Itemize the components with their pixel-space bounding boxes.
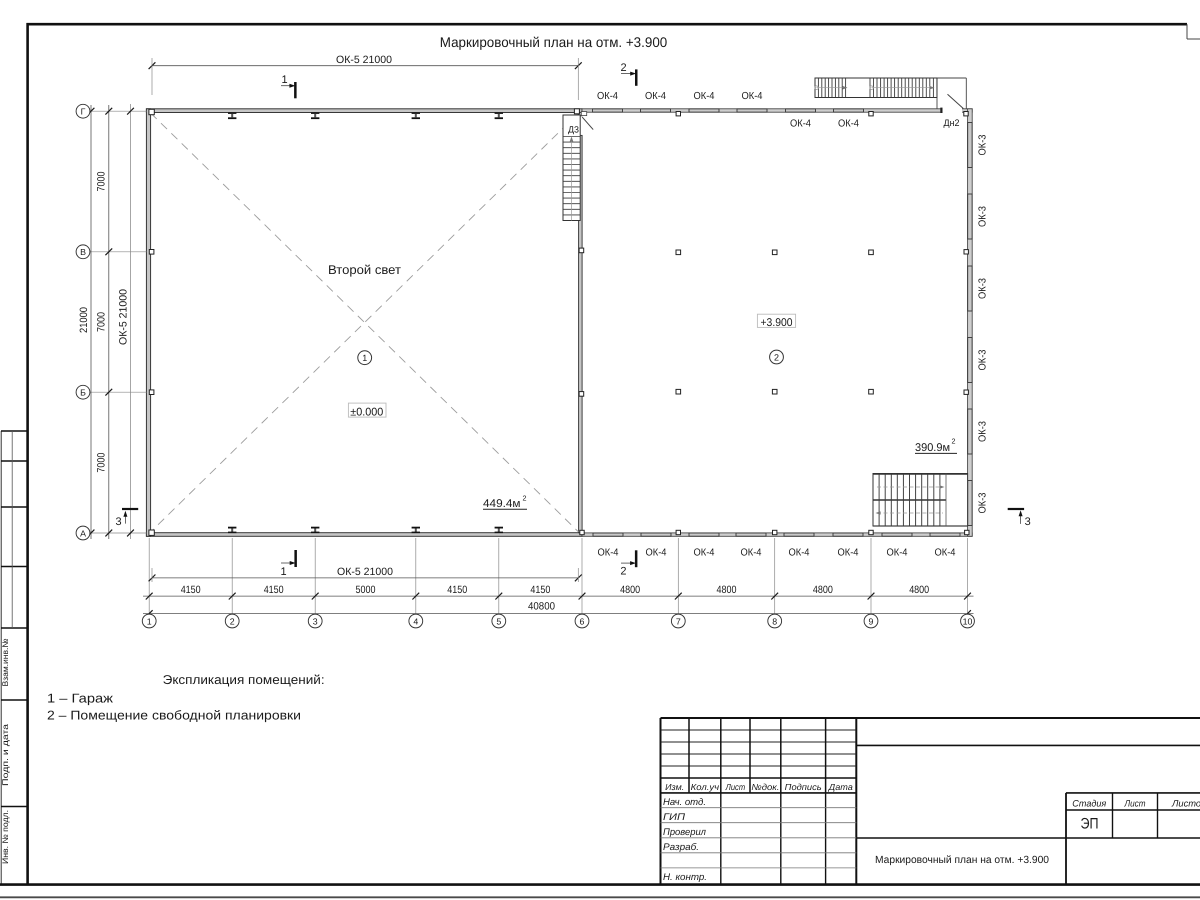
svg-text:2: 2 (523, 494, 527, 503)
svg-text:Взам.инв.№: Взам.инв.№ (1, 638, 10, 686)
svg-text:21000: 21000 (78, 307, 90, 333)
svg-text:ОК-5 21000: ОК-5 21000 (337, 566, 393, 578)
svg-text:4150: 4150 (447, 584, 467, 596)
svg-text:Разраб.: Разраб. (663, 842, 699, 853)
svg-text:Лист: Лист (725, 782, 745, 792)
svg-text:Дата: Дата (828, 782, 853, 792)
svg-text:ОК-3: ОК-3 (978, 492, 989, 513)
svg-text:Дн2: Дн2 (944, 118, 960, 129)
svg-text:Лист: Лист (1124, 798, 1146, 808)
svg-text:А: А (80, 528, 86, 538)
svg-text:2: 2 (952, 437, 956, 446)
svg-text:Г: Г (81, 107, 86, 117)
svg-text:ОК-3: ОК-3 (978, 278, 989, 299)
svg-text:7000: 7000 (96, 171, 108, 191)
svg-text:Нач. отд.: Нач. отд. (663, 797, 706, 808)
svg-text:1: 1 (147, 616, 152, 626)
svg-text:Н. контр.: Н. контр. (663, 872, 707, 883)
svg-text:3: 3 (313, 616, 318, 626)
svg-text:10: 10 (963, 616, 973, 626)
svg-text:№док.: №док. (751, 782, 779, 792)
svg-text:4800: 4800 (620, 584, 640, 596)
svg-text:Экспликация помещений:: Экспликация помещений: (163, 672, 325, 687)
svg-text:40800: 40800 (528, 600, 555, 612)
svg-text:4150: 4150 (181, 584, 201, 596)
svg-text:390.9м: 390.9м (915, 442, 950, 454)
svg-text:ОК-4: ОК-4 (598, 548, 619, 559)
svg-text:1 – Гараж: 1 – Гараж (47, 691, 114, 706)
svg-text:7: 7 (676, 616, 681, 626)
svg-text:ОК-4: ОК-4 (645, 91, 666, 102)
svg-text:2: 2 (620, 566, 626, 578)
svg-text:3: 3 (115, 516, 121, 528)
svg-text:4150: 4150 (264, 584, 284, 596)
svg-text:ОК-3: ОК-3 (978, 349, 989, 370)
svg-text:ОК-4: ОК-4 (742, 91, 763, 102)
svg-text:4800: 4800 (909, 584, 929, 596)
svg-text:2: 2 (230, 616, 235, 626)
svg-text:Проверил: Проверил (663, 827, 707, 838)
svg-text:ОК-4: ОК-4 (741, 548, 762, 559)
svg-text:ОК-4: ОК-4 (838, 548, 859, 559)
svg-text:1: 1 (362, 353, 367, 363)
svg-text:2: 2 (620, 62, 626, 74)
svg-text:ОК-4: ОК-4 (887, 548, 908, 559)
svg-text:Изм.: Изм. (665, 782, 684, 792)
svg-text:6: 6 (580, 616, 585, 626)
svg-text:ОК-4: ОК-4 (646, 548, 667, 559)
svg-text:7000: 7000 (96, 312, 108, 332)
svg-text:Подпись: Подпись (785, 782, 822, 792)
svg-text:ОК-4: ОК-4 (694, 548, 715, 559)
svg-text:+3.900: +3.900 (761, 317, 793, 329)
svg-text:9: 9 (869, 616, 874, 626)
svg-text:В: В (80, 247, 86, 257)
svg-text:Инв. № подл.: Инв. № подл. (1, 810, 10, 864)
svg-text:ОК-5 21000: ОК-5 21000 (336, 54, 392, 66)
svg-text:±0.000: ±0.000 (350, 407, 383, 419)
svg-text:Д3: Д3 (568, 124, 579, 134)
svg-text:2 – Помещение свободной планир: 2 – Помещение свободной планировки (47, 708, 301, 723)
svg-text:4: 4 (413, 616, 418, 626)
svg-text:ОК-3: ОК-3 (978, 206, 989, 227)
svg-text:Маркировочный план на отм. +3.: Маркировочный план на отм. +3.900 (440, 34, 668, 50)
svg-text:ОК-4: ОК-4 (694, 91, 715, 102)
svg-text:4800: 4800 (813, 584, 833, 596)
svg-text:8: 8 (772, 616, 777, 626)
svg-text:449.4м: 449.4м (483, 498, 521, 510)
svg-text:2: 2 (774, 353, 779, 363)
svg-text:5000: 5000 (356, 584, 376, 596)
svg-text:Кол.уч: Кол.уч (691, 782, 720, 792)
svg-text:ОК-4: ОК-4 (838, 119, 859, 130)
svg-text:4800: 4800 (717, 584, 737, 596)
svg-text:Второй свет: Второй свет (328, 263, 401, 277)
svg-text:Стадия: Стадия (1072, 798, 1106, 808)
svg-text:ОК-4: ОК-4 (935, 548, 956, 559)
svg-text:ЭП: ЭП (1081, 815, 1099, 832)
svg-text:ОК-3: ОК-3 (978, 134, 989, 155)
svg-text:ОК-3: ОК-3 (978, 421, 989, 442)
svg-text:1: 1 (281, 74, 287, 86)
svg-text:Б: Б (80, 388, 86, 398)
svg-text:ОК-5 21000: ОК-5 21000 (118, 289, 130, 345)
svg-text:5: 5 (496, 616, 501, 626)
svg-text:7000: 7000 (96, 453, 108, 473)
svg-text:Маркировочный план на отм. +3.: Маркировочный план на отм. +3.900 (875, 855, 1049, 866)
svg-text:ОК-4: ОК-4 (597, 91, 618, 102)
svg-text:4150: 4150 (530, 584, 550, 596)
svg-text:ОК-4: ОК-4 (789, 548, 810, 559)
svg-text:ОК-4: ОК-4 (790, 119, 811, 130)
svg-text:ГИП: ГИП (663, 812, 685, 823)
svg-text:Подп. и дата: Подп. и дата (1, 723, 10, 786)
svg-text:3: 3 (1025, 516, 1031, 528)
svg-text:1: 1 (280, 566, 286, 578)
svg-text:Листов: Листов (1171, 798, 1200, 808)
